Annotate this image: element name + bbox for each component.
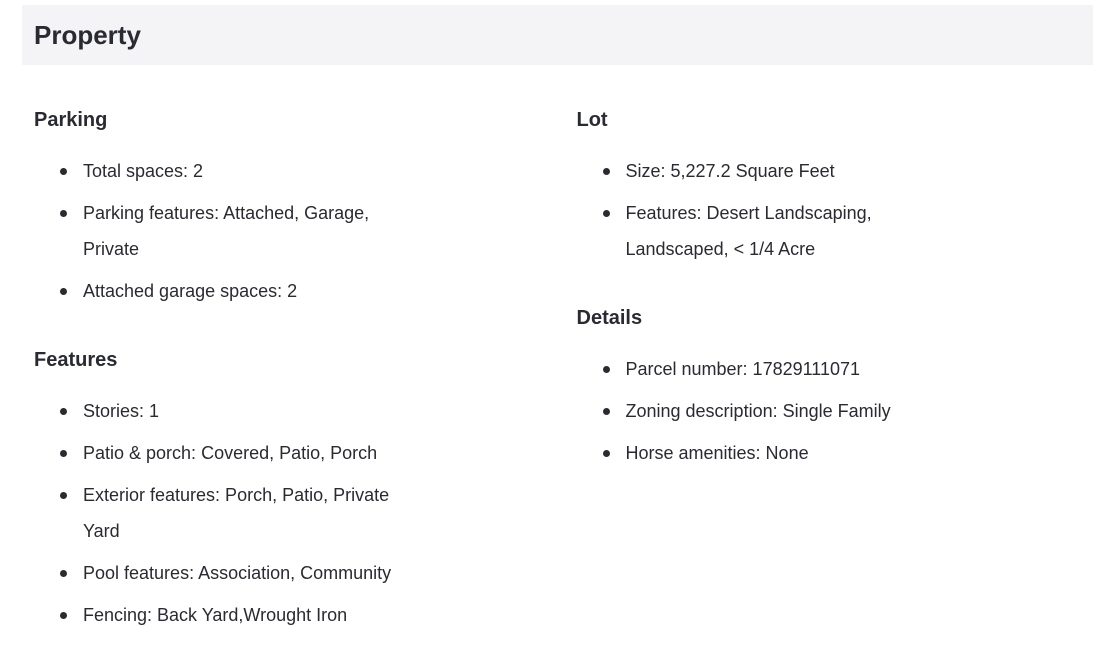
fact-item-lot-size: Size: 5,227.2 Square Feet: [577, 153, 936, 189]
fact-group-heading-features: Features: [34, 348, 551, 372]
parking-fact-list: Total spaces: 2 Parking features: Attach…: [34, 153, 551, 309]
property-section: Property Parking Total spaces: 2 Parking…: [22, 5, 1093, 633]
fact-item-text: Exterior features: Porch, Patio, Private…: [83, 485, 389, 541]
facts-column-right: Lot Size: 5,227.2 Square Feet Features: …: [577, 108, 1094, 633]
bullet-icon: [60, 450, 67, 457]
fact-group-parking: Parking Total spaces: 2 Parking features…: [34, 108, 551, 309]
lot-fact-list: Size: 5,227.2 Square Feet Features: Dese…: [577, 153, 1094, 267]
bullet-icon: [603, 450, 610, 457]
fact-item-zoning-description: Zoning description: Single Family: [577, 393, 936, 429]
bullet-icon: [60, 168, 67, 175]
fact-item-text: Horse amenities: None: [626, 443, 809, 463]
bullet-icon: [60, 492, 67, 499]
fact-item-patio-porch: Patio & porch: Covered, Patio, Porch: [34, 435, 413, 471]
fact-item-lot-features: Features: Desert Landscaping, Landscaped…: [577, 195, 936, 267]
property-section-header: Property: [22, 5, 1093, 65]
bullet-icon: [60, 210, 67, 217]
bullet-icon: [603, 210, 610, 217]
bullet-icon: [60, 570, 67, 577]
details-fact-list: Parcel number: 17829111071 Zoning descri…: [577, 351, 1094, 471]
facts-column-left: Parking Total spaces: 2 Parking features…: [34, 108, 551, 633]
fact-item-text: Features: Desert Landscaping, Landscaped…: [626, 203, 872, 259]
fact-group-heading-lot: Lot: [577, 108, 1094, 132]
fact-item-text: Fencing: Back Yard,Wrought Iron: [83, 605, 347, 625]
fact-item-text: Attached garage spaces: 2: [83, 281, 297, 301]
bullet-icon: [603, 168, 610, 175]
fact-item-stories: Stories: 1: [34, 393, 413, 429]
fact-item-parking-features: Parking features: Attached, Garage, Priv…: [34, 195, 413, 267]
section-title: Property: [34, 20, 141, 51]
fact-group-details: Details Parcel number: 17829111071 Zonin…: [577, 306, 1094, 471]
fact-item-text: Zoning description: Single Family: [626, 401, 891, 421]
fact-item-pool-features: Pool features: Association, Community: [34, 555, 413, 591]
fact-item-horse-amenities: Horse amenities: None: [577, 435, 936, 471]
fact-item-text: Stories: 1: [83, 401, 159, 421]
fact-item-text: Total spaces: 2: [83, 161, 203, 181]
bullet-icon: [60, 288, 67, 295]
fact-group-features: Features Stories: 1 Patio & porch: Cover…: [34, 348, 551, 633]
fact-item-attached-garage-spaces: Attached garage spaces: 2: [34, 273, 413, 309]
fact-item-fencing: Fencing: Back Yard,Wrought Iron: [34, 597, 413, 633]
bullet-icon: [603, 408, 610, 415]
fact-item-text: Pool features: Association, Community: [83, 563, 391, 583]
fact-item-exterior-features: Exterior features: Porch, Patio, Private…: [34, 477, 413, 549]
bullet-icon: [603, 366, 610, 373]
fact-item-text: Parcel number: 17829111071: [626, 359, 861, 379]
fact-item-text: Size: 5,227.2 Square Feet: [626, 161, 835, 181]
fact-item-text: Parking features: Attached, Garage, Priv…: [83, 203, 369, 259]
fact-group-lot: Lot Size: 5,227.2 Square Feet Features: …: [577, 108, 1094, 267]
fact-item-text: Patio & porch: Covered, Patio, Porch: [83, 443, 377, 463]
features-fact-list: Stories: 1 Patio & porch: Covered, Patio…: [34, 393, 551, 633]
fact-group-heading-parking: Parking: [34, 108, 551, 132]
fact-group-heading-details: Details: [577, 306, 1094, 330]
bullet-icon: [60, 612, 67, 619]
fact-item-total-spaces: Total spaces: 2: [34, 153, 413, 189]
fact-item-parcel-number: Parcel number: 17829111071: [577, 351, 936, 387]
bullet-icon: [60, 408, 67, 415]
property-facts: Parking Total spaces: 2 Parking features…: [22, 108, 1093, 633]
